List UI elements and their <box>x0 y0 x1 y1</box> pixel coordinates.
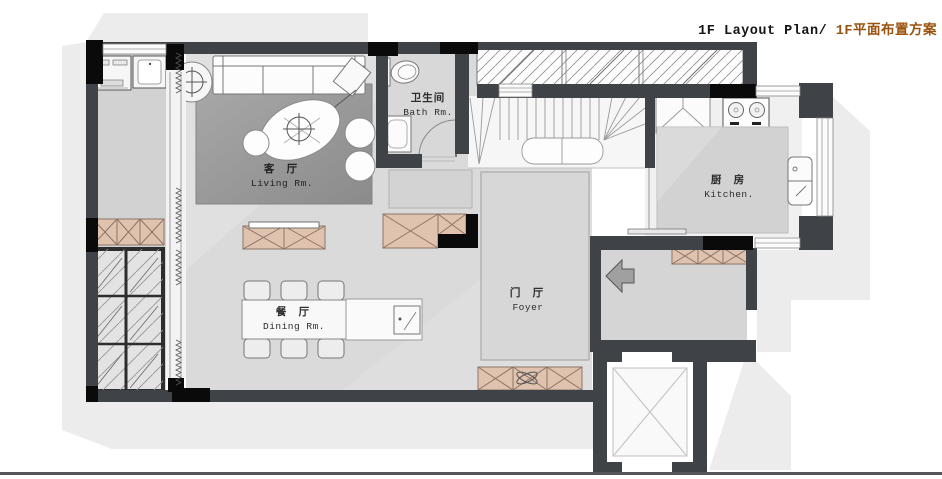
page-title: 1F Layout Plan/ 1F平面布置方案 <box>698 18 937 39</box>
page-title-zh: 1F平面布置方案 <box>836 24 937 39</box>
hall-panel <box>389 170 472 208</box>
pouf <box>345 151 375 181</box>
room-label-dining: 餐 厅 Dining Rm. <box>263 307 325 333</box>
wall-vent <box>499 84 532 97</box>
room-label-living: 客 厅 Living Rm. <box>251 164 313 190</box>
balcony-appliances <box>95 56 166 90</box>
kitchen-island <box>346 299 422 340</box>
balcony-cabinet <box>93 219 164 245</box>
balcony-glass-door <box>89 249 163 391</box>
corridor-cabinet <box>672 248 749 264</box>
kitchen-sink <box>788 157 812 205</box>
ottoman <box>243 130 269 156</box>
foyer-shoe-cabinet <box>478 367 582 390</box>
room-label-foyer: 门 厅 Foyer <box>510 288 546 314</box>
floor-plan-drawing <box>0 0 942 479</box>
sliding-door <box>628 229 686 234</box>
tv-cabinet <box>243 222 325 249</box>
hall-cabinet <box>383 214 478 248</box>
stair-window-band <box>477 49 743 85</box>
foyer-mat <box>481 172 589 360</box>
room-label-bath: 卫生间 Bath Rm. <box>403 93 453 119</box>
floor-plan-page: 客 厅 Living Rm. 卫生间 Bath Rm. 厨 房 Kitchen.… <box>0 0 942 479</box>
balcony-divider-window <box>166 53 186 385</box>
soundbar <box>249 222 319 228</box>
gas-stove <box>723 98 769 127</box>
pouf <box>345 118 375 148</box>
utility-sink <box>133 56 166 88</box>
footer-line <box>0 472 942 475</box>
page-title-en: 1F Layout Plan/ <box>698 24 836 39</box>
room-label-kitchen: 厨 房 Kitchen. <box>704 175 754 201</box>
